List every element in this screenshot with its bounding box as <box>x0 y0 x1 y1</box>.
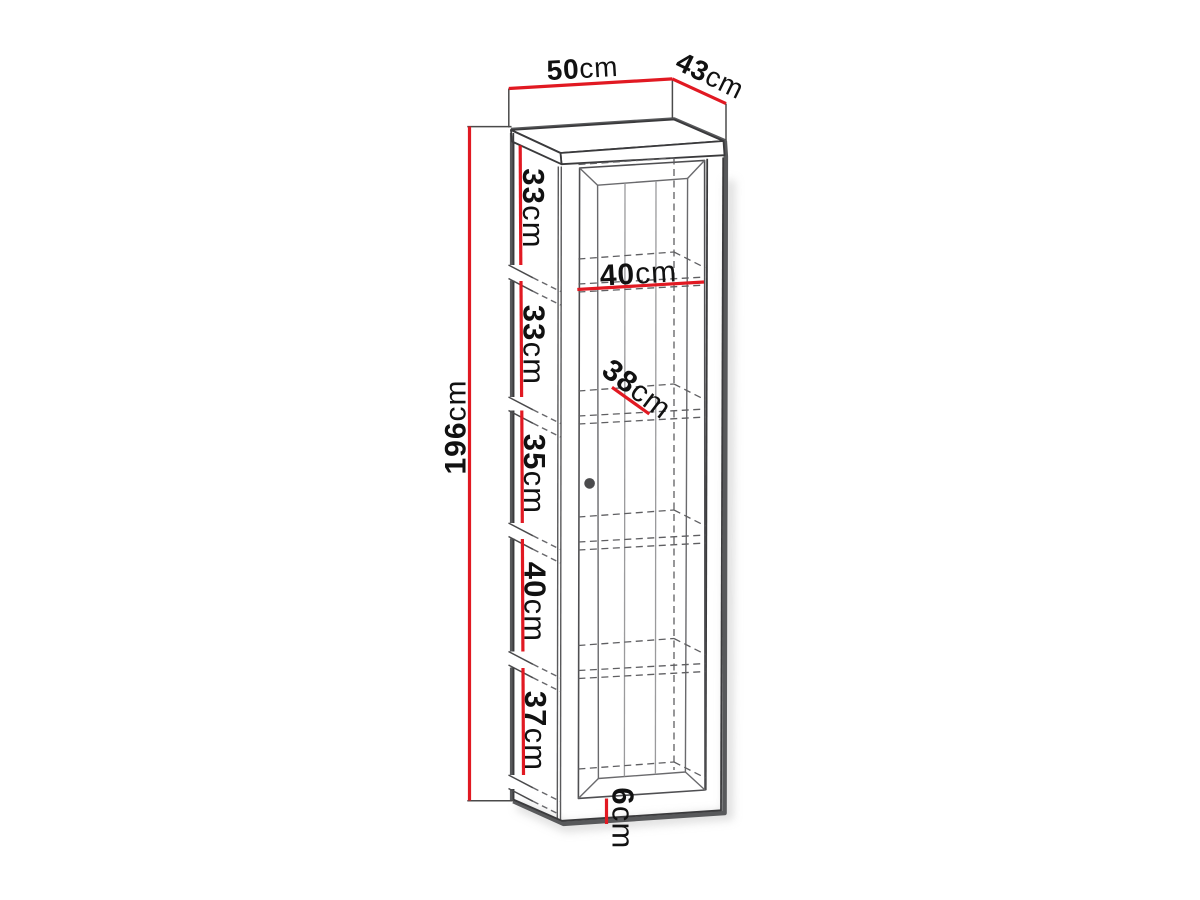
svg-text:50cm: 50cm <box>546 51 619 86</box>
svg-text:33cm: 33cm <box>516 168 551 249</box>
svg-text:196cm: 196cm <box>440 379 473 474</box>
svg-text:33cm: 33cm <box>517 305 552 386</box>
svg-text:35cm: 35cm <box>517 434 552 515</box>
svg-text:6cm: 6cm <box>606 787 641 849</box>
svg-text:37cm: 37cm <box>518 691 553 772</box>
svg-text:40cm: 40cm <box>599 255 678 293</box>
svg-text:40cm: 40cm <box>518 562 553 643</box>
